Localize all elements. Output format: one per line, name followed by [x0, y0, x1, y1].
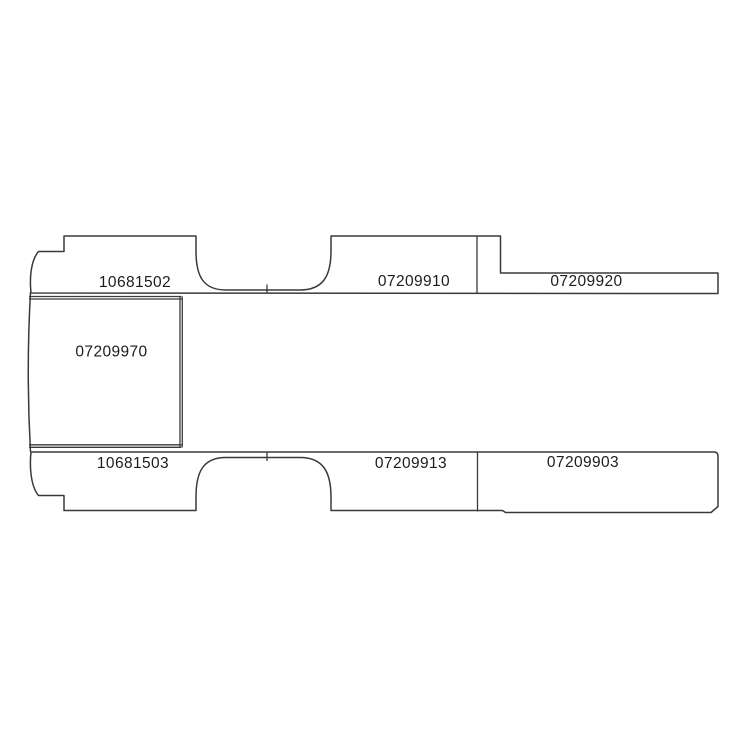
center-panel-left-edge: [28, 292, 30, 452]
part-label-bottom-middle: 07209913: [375, 455, 447, 472]
part-label-top-middle: 07209910: [378, 273, 450, 290]
part-label-bottom-left: 10681503: [97, 455, 169, 472]
part-label-bottom-right: 07209903: [547, 454, 619, 471]
part-label-center: 07209970: [75, 344, 147, 361]
center-panel-top-border: [29, 297, 182, 300]
diagram-canvas: 10681502 07209910 07209920 07209970 1068…: [0, 0, 750, 750]
center-panel-right-border: [180, 297, 182, 448]
part-labels: 10681502 07209910 07209920 07209970 1068…: [75, 273, 622, 472]
floor-panels-diagram: 10681502 07209910 07209920 07209970 1068…: [0, 0, 750, 750]
part-label-top-left: 10681502: [99, 274, 171, 291]
part-label-top-right: 07209920: [550, 273, 622, 290]
center-panel-bottom-border: [29, 445, 182, 448]
